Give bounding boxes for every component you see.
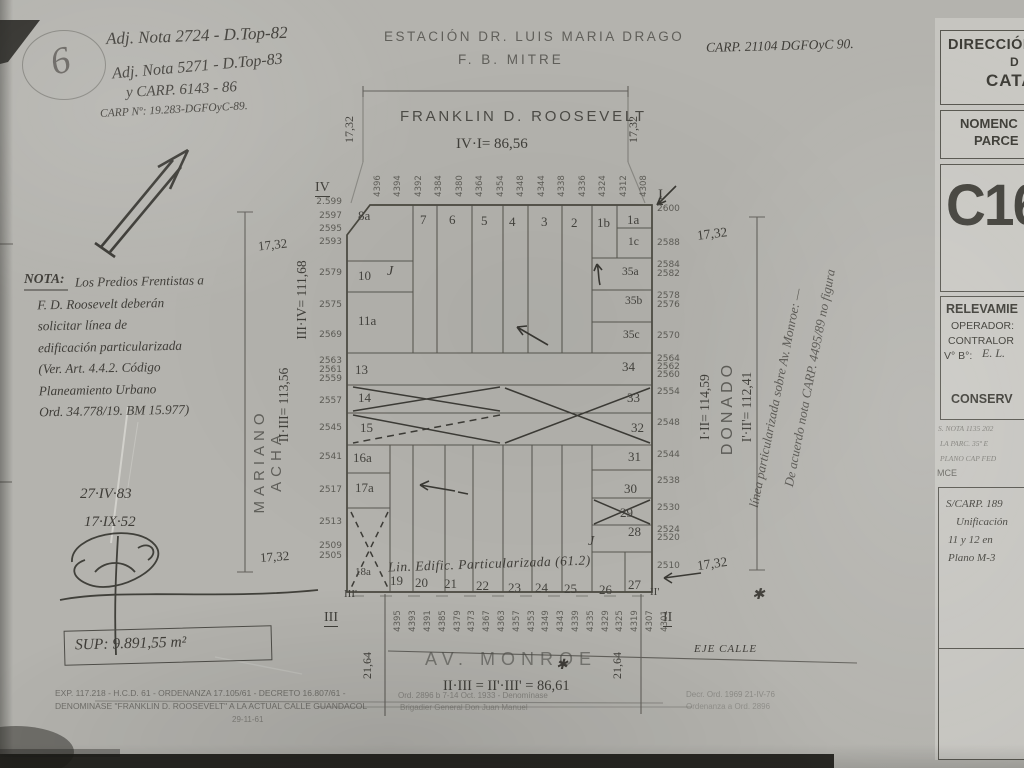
- address-west: 2579: [300, 268, 342, 278]
- address-west: 2595: [300, 224, 342, 234]
- address-north: 4344: [534, 164, 549, 208]
- agency-line-2: D: [1010, 55, 1019, 69]
- parcel-label: 6: [449, 212, 456, 228]
- address-east: 2520: [657, 533, 680, 543]
- address-south: 4395: [391, 599, 406, 643]
- address-north: 4354: [493, 164, 508, 208]
- address-south: 4373: [465, 599, 480, 643]
- parcel-label: 35a: [622, 266, 639, 278]
- address-south: 4329: [598, 599, 613, 643]
- parcel-label: 3: [541, 214, 548, 230]
- address-west: 2509: [300, 541, 342, 551]
- address-west: 2517: [300, 485, 342, 495]
- parcel-label: 25: [564, 581, 577, 597]
- parcel-label: 14: [358, 390, 371, 406]
- dim-2164-se: 21,64: [610, 652, 625, 679]
- address-east: 2588: [657, 238, 680, 248]
- street-axis-label: EJE CALLE: [694, 643, 757, 655]
- address-south: 4301: [657, 599, 672, 643]
- note-line: (Ver. Art. 4.4.2. Código: [38, 355, 205, 379]
- address-north: 4312: [616, 164, 631, 208]
- corner-marker-nw: IV: [315, 180, 330, 197]
- parcel-label: 17a: [355, 480, 374, 496]
- parcel-label: 10: [358, 268, 371, 284]
- nomenclature-line-1: NOMENC: [960, 116, 1018, 131]
- roosevelt-note: Los Predios Frentistas aF. D. Roosevelt …: [23, 269, 207, 423]
- address-east: 2570: [657, 331, 680, 341]
- address-east: 2538: [657, 476, 680, 486]
- address-south: 4349: [539, 599, 554, 643]
- street-name-monroe: AV. MONROE: [425, 649, 597, 670]
- footer-line-1: EXP. 117.218 - H.C.D. 61 - ORDENANZA 17.…: [55, 688, 346, 698]
- address-south: 4339: [569, 599, 584, 643]
- parcel-label: 33: [627, 390, 640, 406]
- address-west: 2575: [300, 300, 342, 310]
- address-south: 4325: [613, 599, 628, 643]
- mce-label: MCE: [937, 468, 957, 478]
- dim-1732-nw: 17,32: [342, 116, 357, 143]
- street-name-donado: DONADO: [719, 333, 737, 483]
- parcel-label: 16a: [353, 450, 372, 466]
- carp-entry-1: S/CARP. 189: [946, 498, 1003, 510]
- address-west: 2513: [300, 517, 342, 527]
- parcel-label: 26: [599, 582, 612, 598]
- dim-1732-ne: 17,32: [626, 116, 641, 143]
- dim-2164-sw: 21,64: [360, 652, 375, 679]
- monroe-ordinance-1: Ord. 2896 b 7-14 Oct. 1933 - Denomínase: [398, 691, 548, 700]
- address-east: 2510: [657, 561, 680, 571]
- parcel-label: 4: [509, 214, 516, 230]
- title-block-carp-box: [938, 487, 1024, 649]
- address-west: 2597: [300, 211, 342, 221]
- address-south: 4353: [524, 599, 539, 643]
- ref-note-1: S. NOTA 1135 202: [938, 424, 993, 433]
- date-annotation-1: 27·IV·83: [80, 486, 132, 503]
- parcel-label: 20: [415, 575, 428, 591]
- parcel-label: 24: [535, 580, 548, 596]
- corner-marker-sw-inner: III': [344, 588, 357, 600]
- note-line: edificación particularizada: [38, 334, 205, 358]
- parcel-label: 1c: [628, 236, 639, 248]
- address-west: 2541: [300, 452, 342, 462]
- vb-initials: E. L.: [982, 346, 1005, 361]
- address-west: 2559: [300, 374, 342, 384]
- address-east: 2530: [657, 503, 680, 513]
- conservation-label: CONSERV: [951, 392, 1013, 406]
- address-north: 4364: [473, 164, 488, 208]
- parcel-label: 30: [624, 481, 637, 497]
- address-south: 4335: [583, 599, 598, 643]
- note-line: F. D. Roosevelt deberán: [37, 291, 204, 315]
- dim-acha-outer: II·III= 113,56: [276, 330, 292, 480]
- address-east: 2548: [657, 418, 680, 428]
- monroe-ordinance-2: Brigadier General Don Juan Manuel: [400, 703, 528, 712]
- parcel-label: 18a: [355, 566, 371, 578]
- parcel-label: 1b: [597, 215, 610, 231]
- address-west: 2593: [300, 237, 342, 247]
- operator-label: OPERADOR:: [951, 320, 1014, 332]
- address-south: 4393: [406, 599, 421, 643]
- address-north: 4392: [411, 164, 426, 208]
- survey-title: RELEVAMIE: [946, 302, 1018, 316]
- parcel-label: 5: [481, 213, 488, 229]
- scanned-cadastral-plan: 6 Adj. Nota 2724 - D.Top-82 Adj. Nota 52…: [0, 0, 1024, 768]
- note-line: solicitar línea de: [37, 312, 204, 336]
- parcel-label: 31: [628, 449, 641, 465]
- parcel-label: 11a: [358, 313, 376, 329]
- address-north: 4348: [514, 164, 529, 208]
- corner-marker-ne: I: [658, 187, 663, 205]
- agency-line-1: DIRECCIÓN: [948, 37, 1024, 53]
- address-east: 2582: [657, 269, 680, 279]
- address-north: 4338: [555, 164, 570, 208]
- dim-donado-outer: I·II= 114,59: [697, 332, 713, 482]
- parcel-label: 23: [508, 580, 521, 596]
- address-east: 2544: [657, 450, 680, 460]
- corner-marker-sw: III: [324, 610, 338, 627]
- parcel-label: 27: [628, 577, 641, 593]
- address-west: 2545: [300, 423, 342, 433]
- dim-donado-inner: I'·II'= 112,41: [739, 332, 755, 482]
- parcel-label: 28: [628, 524, 641, 540]
- sheet-number-circle: 6: [22, 30, 106, 100]
- parcel-label: 35b: [625, 295, 642, 307]
- side-note-star-mark: ✱: [752, 585, 765, 604]
- address-south: 4391: [421, 599, 436, 643]
- address-west: 2505: [300, 551, 342, 561]
- address-south: 4307: [643, 599, 658, 643]
- parcel-label: 22: [476, 578, 489, 594]
- carp-entry-4: Plano M-3: [948, 552, 995, 564]
- pencil-arrow-icon: [95, 150, 188, 257]
- parcel-label: 34: [622, 359, 635, 375]
- parcel-label: 32: [631, 420, 644, 436]
- address-row-south: 4395439343914385437943734367436343574353…: [391, 599, 672, 643]
- address-south: 4343: [554, 599, 569, 643]
- parcel-label: 1a: [627, 212, 639, 228]
- dim-roosevelt: IV·I= 86,56: [456, 136, 528, 153]
- ref-note-3: PLANO CAP FED: [940, 454, 996, 463]
- title-block-empty-box: [938, 648, 1024, 760]
- address-north: 4384: [432, 164, 447, 208]
- ref-note-2: LA PARC. 35ª E: [940, 439, 988, 448]
- vb-label: V° B°:: [944, 350, 972, 362]
- address-north: 4336: [575, 164, 590, 208]
- station-label-line1: ESTACIÓN DR. LUIS MARIA DRAGO: [384, 29, 684, 44]
- parcel-label: 7: [420, 212, 427, 228]
- surface-value: SUP: 9.891,55 m²: [75, 634, 187, 655]
- sheet-code: C16: [946, 172, 1024, 239]
- station-label-line2: F. B. MITRE: [458, 52, 564, 67]
- address-south: 4385: [435, 599, 450, 643]
- nomenclature-line-2: PARCE: [974, 133, 1019, 148]
- dim-1732-w-bottom: 17,32: [259, 548, 289, 566]
- address-row-north: 4396439443924384438043644354434843444338…: [370, 164, 652, 208]
- address-north: 4324: [596, 164, 611, 208]
- parcel-label: 35c: [623, 329, 640, 341]
- parcel-label: 29: [620, 505, 633, 521]
- address-east: 2576: [657, 300, 680, 310]
- address-east: 2600: [657, 204, 680, 214]
- address-south: 4319: [628, 599, 643, 643]
- corner-marker-se-inner: II': [650, 586, 659, 598]
- address-west: 2.599: [300, 197, 342, 207]
- footer-line-2: DENOMINASE "FRANKLIN D. ROOSEVELT" A LA …: [55, 701, 367, 711]
- footer-line-3: 29-11-61: [232, 715, 263, 724]
- address-north: 4380: [452, 164, 467, 208]
- footer-right-faint-2: Ordenanza a Ord. 2896: [686, 702, 770, 711]
- dim-1732-w-top: 17,32: [257, 236, 288, 255]
- parcel-label: 13: [355, 362, 368, 378]
- address-west: 2557: [300, 396, 342, 406]
- parcel-label: 8a: [358, 208, 370, 224]
- address-south: 4357: [509, 599, 524, 643]
- address-east: 2554: [657, 387, 680, 397]
- agency-line-3: CATA: [986, 71, 1024, 91]
- address-north: 4396: [370, 164, 385, 208]
- address-west: 2569: [300, 330, 342, 340]
- address-south: 4379: [450, 599, 465, 643]
- carp-entry-3: 11 y 12 en: [948, 534, 993, 546]
- note-line: Planeamiento Urbano: [39, 377, 206, 401]
- note-line: Ord. 34.778/19. BM 15.977): [39, 398, 206, 422]
- address-east: 2560: [657, 370, 680, 380]
- carp-entry-2: Unificación: [956, 516, 1008, 528]
- monroe-star-mark: ✱: [556, 657, 568, 674]
- address-south: 4367: [480, 599, 495, 643]
- parcel-label: 15: [360, 420, 373, 436]
- footer-right-faint-1: Decr. Ord. 1969 21-IV-76: [686, 690, 775, 699]
- parcel-label: 21: [444, 576, 457, 592]
- date-annotation-2: 17·IX·52: [84, 514, 136, 531]
- sheet-number: 6: [46, 37, 75, 84]
- parcel-label: 2: [571, 215, 578, 231]
- surface-box: SUP: 9.891,55 m²: [64, 625, 273, 665]
- parcel-j-mark: J: [387, 264, 393, 280]
- address-south: 4363: [495, 599, 510, 643]
- street-name-roosevelt: FRANKLIN D. ROOSEVELT: [400, 108, 647, 125]
- note-line: Los Predios Frentistas a: [23, 269, 204, 294]
- address-north: 4394: [391, 164, 406, 208]
- address-north: 4308: [637, 164, 652, 208]
- parcel-j-mark: J: [588, 534, 594, 550]
